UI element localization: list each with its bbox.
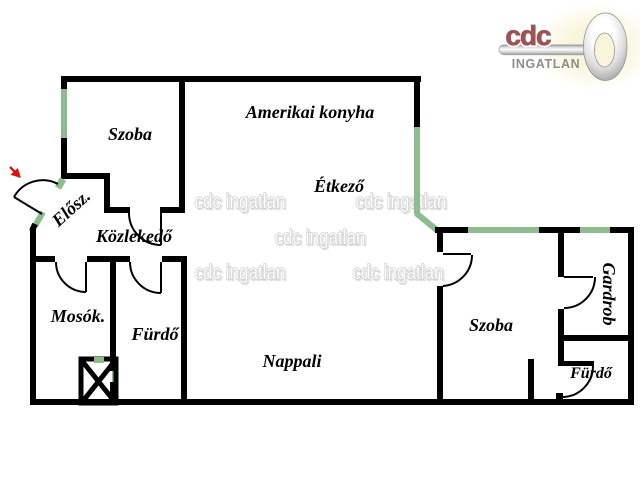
svg-text:Gardrob: Gardrob <box>599 262 619 325</box>
svg-text:Fürdő: Fürdő <box>569 365 613 382</box>
svg-text:INGATLAN: INGATLAN <box>512 57 580 71</box>
svg-text:Nappali: Nappali <box>261 351 321 371</box>
svg-text:cdc ingatlan: cdc ingatlan <box>356 191 447 213</box>
svg-text:Amerikai konyha: Amerikai konyha <box>245 102 375 122</box>
svg-text:Közlekedő: Közlekedő <box>95 226 173 246</box>
svg-text:Fürdő: Fürdő <box>130 324 179 344</box>
svg-text:cdc ingatlan: cdc ingatlan <box>195 191 286 213</box>
svg-text:Szoba: Szoba <box>108 124 152 144</box>
svg-text:cdc ingatlan: cdc ingatlan <box>195 262 286 284</box>
svg-text:Mosók.: Mosók. <box>50 306 106 326</box>
svg-text:cdc: cdc <box>505 20 551 51</box>
svg-text:Étkező: Étkező <box>313 175 365 196</box>
svg-text:cdc ingatlan: cdc ingatlan <box>353 262 444 284</box>
svg-text:Szoba: Szoba <box>469 315 513 335</box>
svg-text:cdc ingatlan: cdc ingatlan <box>275 227 366 249</box>
